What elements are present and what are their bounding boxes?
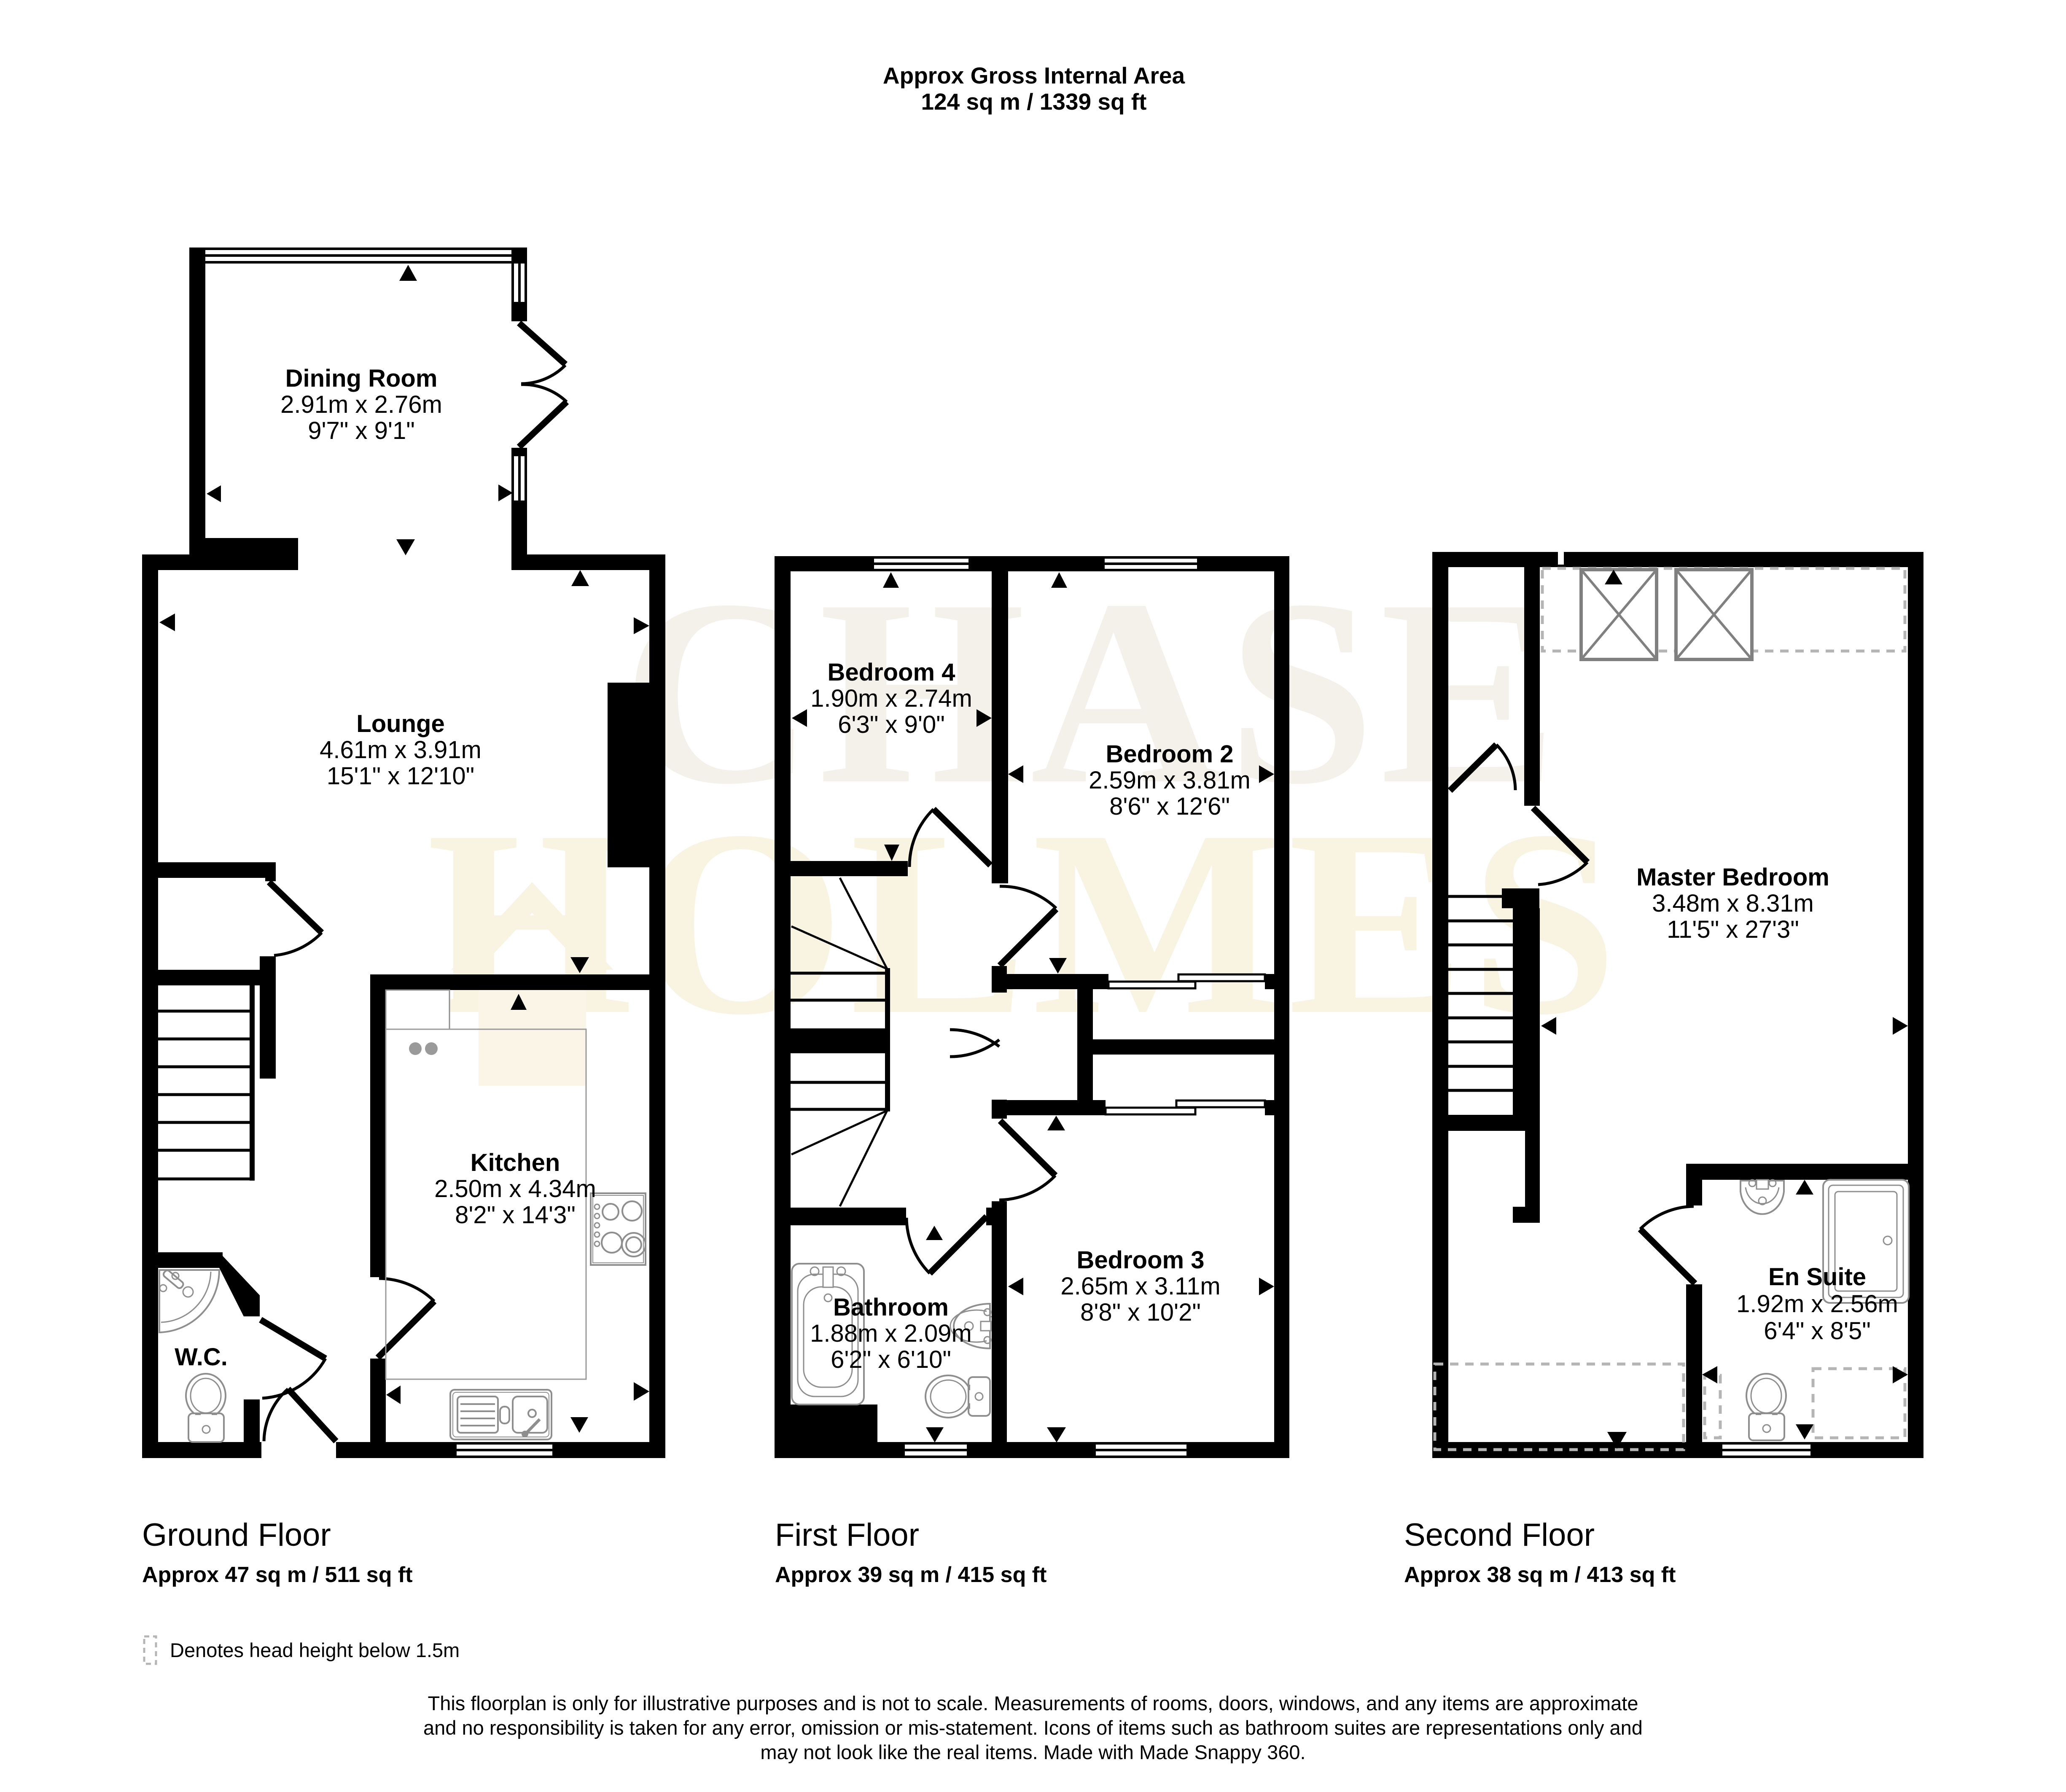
- svg-text:Bedroom 2: Bedroom 2: [1106, 740, 1234, 768]
- svg-text:2.59m x 3.81m: 2.59m x 3.81m: [1089, 767, 1251, 794]
- svg-text:2.65m x 3.11m: 2.65m x 3.11m: [1060, 1273, 1220, 1300]
- svg-text:Approx Gross Internal Area: Approx Gross Internal Area: [883, 62, 1185, 89]
- svg-text:6'3" x 9'0": 6'3" x 9'0": [838, 711, 945, 738]
- svg-text:Ground Floor: Ground Floor: [142, 1517, 331, 1553]
- svg-text:124 sq m / 1339 sq ft: 124 sq m / 1339 sq ft: [921, 89, 1147, 115]
- svg-text:2.91m x 2.76m: 2.91m x 2.76m: [280, 391, 442, 418]
- svg-text:and no responsibility is taken: and no responsibility is taken for any e…: [423, 1717, 1643, 1739]
- svg-text:11'5" x 27'3": 11'5" x 27'3": [1667, 916, 1799, 943]
- svg-text:8'2" x 14'3": 8'2" x 14'3": [455, 1201, 576, 1229]
- svg-text:Approx 38 sq m / 413 sq ft: Approx 38 sq m / 413 sq ft: [1404, 1563, 1676, 1587]
- svg-text:may not look like the real ite: may not look like the real items. Made w…: [760, 1741, 1305, 1763]
- svg-text:Master Bedroom: Master Bedroom: [1636, 864, 1829, 891]
- svg-text:8'8" x 10'2": 8'8" x 10'2": [1080, 1299, 1201, 1326]
- svg-text:8'6" x 12'6": 8'6" x 12'6": [1109, 793, 1230, 820]
- svg-text:2.50m x 4.34m: 2.50m x 4.34m: [434, 1175, 596, 1203]
- svg-text:6'2" x 6'10": 6'2" x 6'10": [831, 1346, 951, 1373]
- svg-text:Approx 47 sq m / 511 sq ft: Approx 47 sq m / 511 sq ft: [142, 1563, 413, 1587]
- svg-text:15'1" x 12'10": 15'1" x 12'10": [327, 762, 474, 790]
- svg-text:Bedroom 4: Bedroom 4: [828, 659, 955, 686]
- svg-text:Second Floor: Second Floor: [1404, 1517, 1595, 1553]
- svg-text:Bathroom: Bathroom: [833, 1294, 949, 1321]
- svg-text:1.90m x 2.74m: 1.90m x 2.74m: [810, 685, 972, 712]
- svg-text:9'7" x 9'1": 9'7" x 9'1": [308, 417, 415, 444]
- svg-text:This floorplan is only for ill: This floorplan is only for illustrative …: [428, 1692, 1638, 1714]
- svg-text:Approx 39 sq m / 415 sq ft: Approx 39 sq m / 415 sq ft: [775, 1563, 1046, 1587]
- svg-text:W.C.: W.C.: [175, 1343, 228, 1371]
- svg-text:6'4" x 8'5": 6'4" x 8'5": [1764, 1317, 1871, 1345]
- svg-text:Lounge: Lounge: [356, 710, 444, 737]
- svg-text:Bedroom 3: Bedroom 3: [1077, 1246, 1205, 1274]
- svg-text:En Suite: En Suite: [1768, 1263, 1866, 1291]
- svg-text:1.92m x 2.56m: 1.92m x 2.56m: [1736, 1290, 1898, 1318]
- svg-text:3.48m x 8.31m: 3.48m x 8.31m: [1652, 890, 1814, 917]
- svg-text:Dining Room: Dining Room: [285, 365, 438, 392]
- svg-text:1.88m x 2.09m: 1.88m x 2.09m: [810, 1320, 972, 1347]
- svg-text:4.61m x 3.91m: 4.61m x 3.91m: [320, 736, 482, 764]
- svg-text:Kitchen: Kitchen: [471, 1149, 560, 1176]
- svg-text:First Floor: First Floor: [775, 1517, 919, 1553]
- svg-text:Denotes head height below 1.5m: Denotes head height below 1.5m: [170, 1639, 460, 1661]
